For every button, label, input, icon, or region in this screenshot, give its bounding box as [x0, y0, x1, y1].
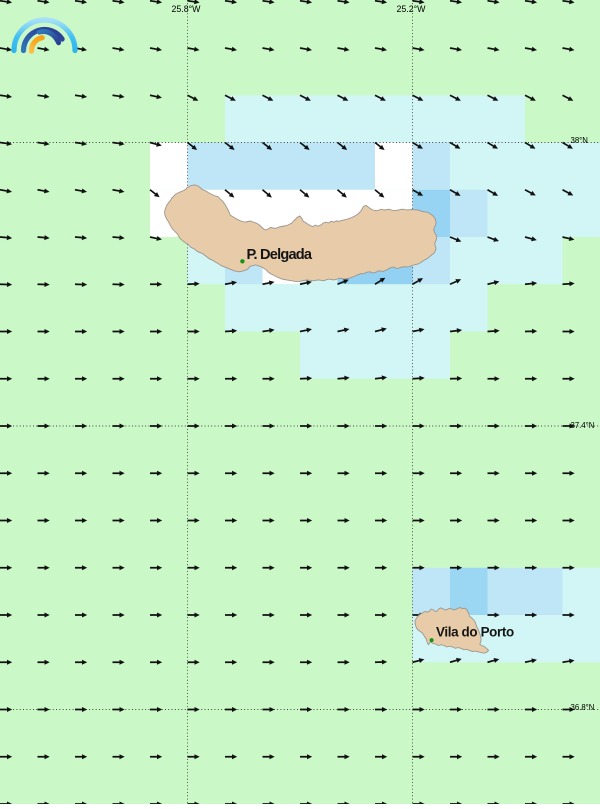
svg-text:37.4°N: 37.4°N: [571, 421, 595, 430]
svg-text:25.8°W: 25.8°W: [172, 4, 202, 14]
svg-text:Vila do Porto: Vila do Porto: [436, 625, 514, 640]
svg-text:P. Delgada: P. Delgada: [247, 247, 313, 263]
svg-text:25.2°W: 25.2°W: [397, 4, 427, 14]
svg-text:38°N: 38°N: [571, 136, 588, 145]
svg-text:36.8°N: 36.8°N: [571, 703, 595, 712]
